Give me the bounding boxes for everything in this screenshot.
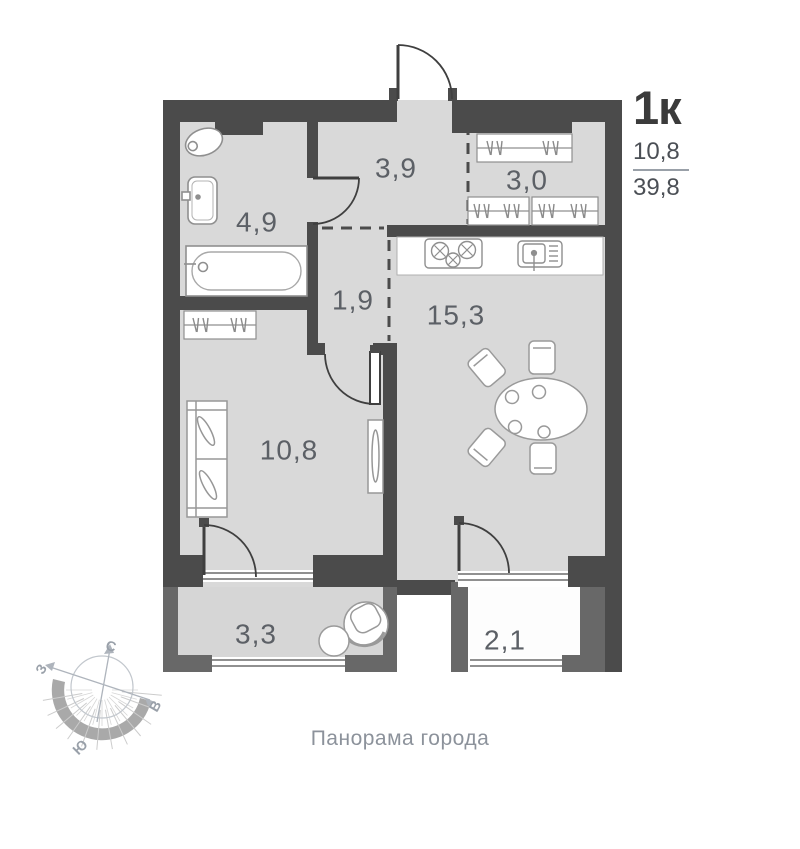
stove-icon — [425, 239, 482, 268]
loggia-right-glazing — [470, 657, 562, 668]
compass-north-label: С — [104, 637, 118, 655]
washbasin-icon — [182, 177, 217, 224]
room-label-hallway: 3,9 — [375, 153, 417, 184]
room-label-loggia-right: 2,1 — [484, 625, 526, 656]
chair-icon — [530, 443, 556, 474]
total-area-value: 39,8 — [633, 171, 689, 202]
room-label-loggia-left: 3,3 — [235, 619, 277, 650]
wardrobe-icon — [468, 197, 529, 225]
room-label-wardrobe: 3,0 — [506, 165, 548, 196]
living-area-value: 10,8 — [633, 138, 689, 171]
tv-unit-icon — [368, 420, 383, 493]
sofa-icon — [187, 401, 227, 517]
loggia-left-glazing — [212, 657, 345, 668]
wardrobe-icon — [532, 197, 598, 225]
wardrobe-icon — [184, 311, 256, 339]
compass-east-label: В — [146, 698, 165, 715]
chair-icon — [529, 341, 555, 374]
armchair-icon — [344, 601, 388, 646]
wardrobe-icon — [477, 134, 572, 162]
area-fraction: 10,8 39,8 — [633, 138, 689, 202]
room-label-bathroom: 4,9 — [236, 207, 278, 238]
kitchen-window — [458, 571, 568, 587]
room-label-kitchen: 15,3 — [427, 300, 486, 331]
apartment-type-label: 1к — [633, 84, 689, 131]
entrance-door — [398, 45, 452, 99]
room-label-bedroom: 10,8 — [260, 435, 319, 466]
side-table-icon — [319, 626, 349, 656]
compass-west-label: З — [32, 661, 50, 677]
west-east-axis — [50, 667, 150, 700]
kitchen-sink-icon — [518, 241, 562, 271]
floorplan-sheet: 3,9 3,0 4,9 1,9 15,3 10,8 3,3 2,1 — [0, 0, 800, 849]
kitchen-fixtures — [397, 237, 603, 275]
bathtub-icon — [184, 246, 307, 296]
bedroom-window — [203, 570, 313, 582]
dining-table-icon — [495, 378, 587, 440]
title-block: 1к 10,8 39,8 — [633, 84, 689, 202]
room-label-corridor: 1,9 — [332, 285, 374, 316]
view-caption: Панорама города — [0, 727, 800, 751]
entrance-threshold — [397, 100, 452, 122]
